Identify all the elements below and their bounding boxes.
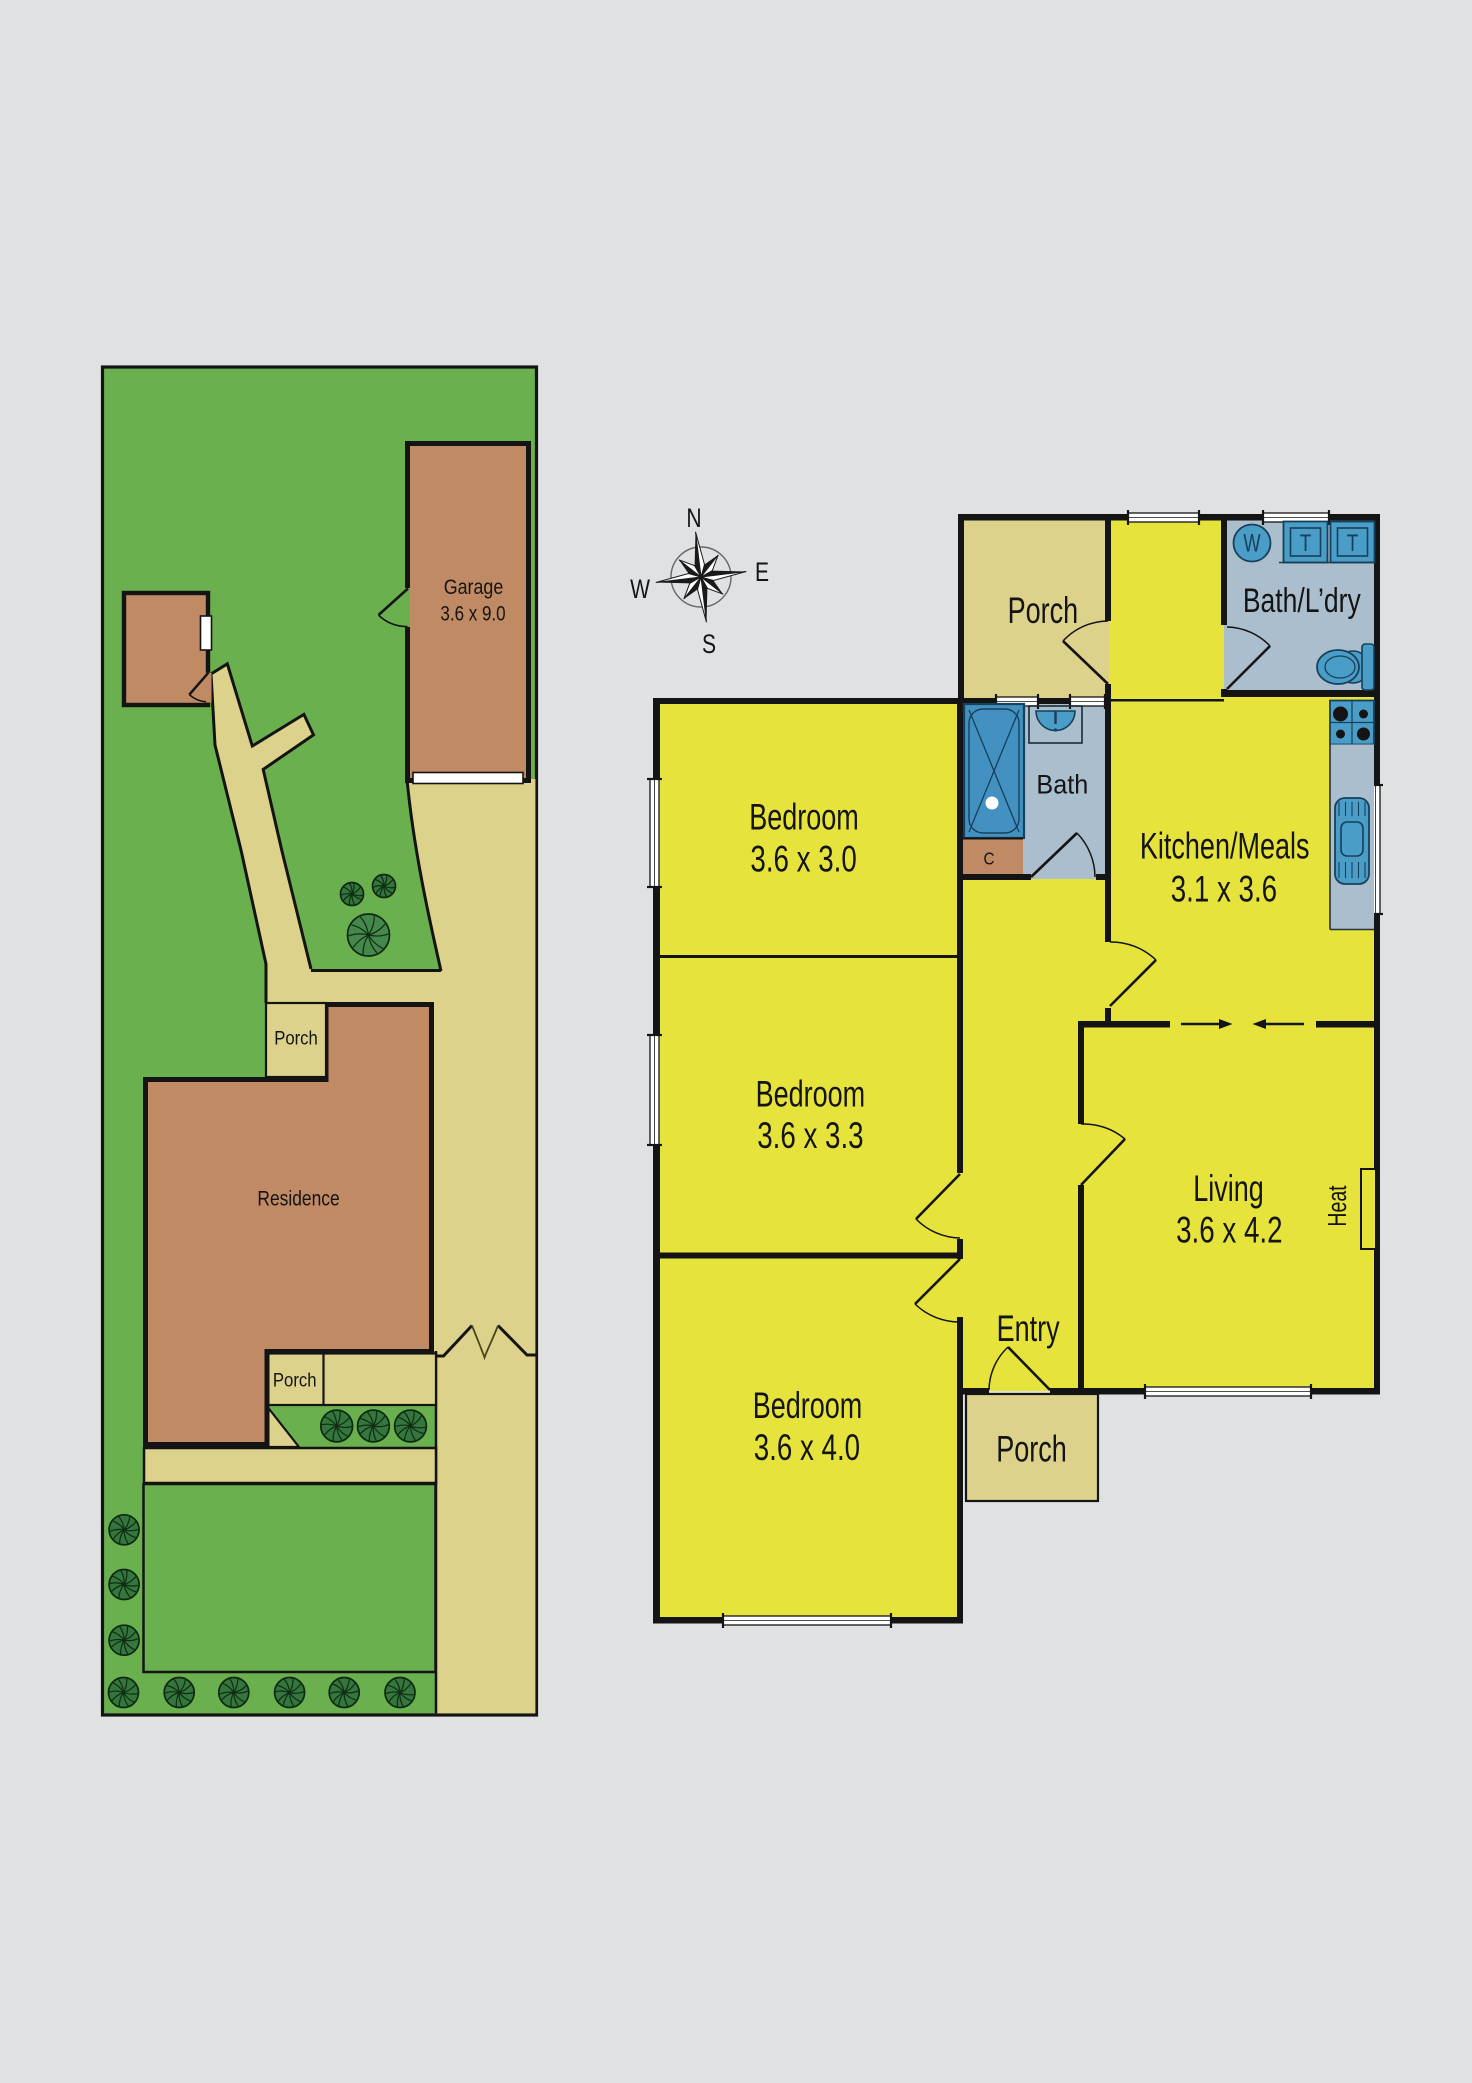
svg-text:Entry: Entry bbox=[997, 1308, 1061, 1349]
svg-text:E: E bbox=[755, 558, 769, 588]
svg-text:3.6 x 4.2: 3.6 x 4.2 bbox=[1176, 1208, 1282, 1250]
svg-text:S: S bbox=[702, 630, 716, 660]
svg-text:3.6 x 3.0: 3.6 x 3.0 bbox=[750, 837, 856, 879]
svg-text:3.6 x 4.0: 3.6 x 4.0 bbox=[754, 1426, 860, 1468]
svg-text:W: W bbox=[1243, 529, 1261, 558]
svg-text:N: N bbox=[686, 504, 701, 534]
svg-text:Bath/L’dry: Bath/L’dry bbox=[1243, 582, 1362, 620]
svg-text:Porch: Porch bbox=[996, 1428, 1067, 1469]
svg-text:Bedroom: Bedroom bbox=[756, 1074, 866, 1115]
svg-text:Heat: Heat bbox=[1322, 1185, 1351, 1227]
svg-text:Bath: Bath bbox=[1036, 771, 1088, 800]
svg-text:3.1 x 3.6: 3.1 x 3.6 bbox=[1171, 868, 1277, 910]
svg-text:Porch: Porch bbox=[274, 1027, 318, 1048]
svg-text:Porch: Porch bbox=[273, 1370, 317, 1391]
svg-text:Porch: Porch bbox=[1008, 590, 1079, 631]
svg-text:T: T bbox=[1300, 530, 1312, 557]
svg-text:3.6 x 3.3: 3.6 x 3.3 bbox=[757, 1114, 863, 1156]
svg-text:C: C bbox=[983, 848, 994, 868]
svg-text:Kitchen/Meals: Kitchen/Meals bbox=[1140, 826, 1310, 867]
svg-text:Living: Living bbox=[1193, 1168, 1264, 1209]
svg-text:Bedroom: Bedroom bbox=[749, 796, 859, 837]
svg-text:T: T bbox=[1347, 530, 1359, 557]
svg-text:Residence: Residence bbox=[257, 1188, 339, 1211]
svg-text:Garage: Garage bbox=[444, 576, 503, 600]
svg-text:Bedroom: Bedroom bbox=[753, 1385, 863, 1426]
svg-text:W: W bbox=[630, 575, 650, 605]
svg-text:3.6 x 9.0: 3.6 x 9.0 bbox=[440, 603, 505, 626]
